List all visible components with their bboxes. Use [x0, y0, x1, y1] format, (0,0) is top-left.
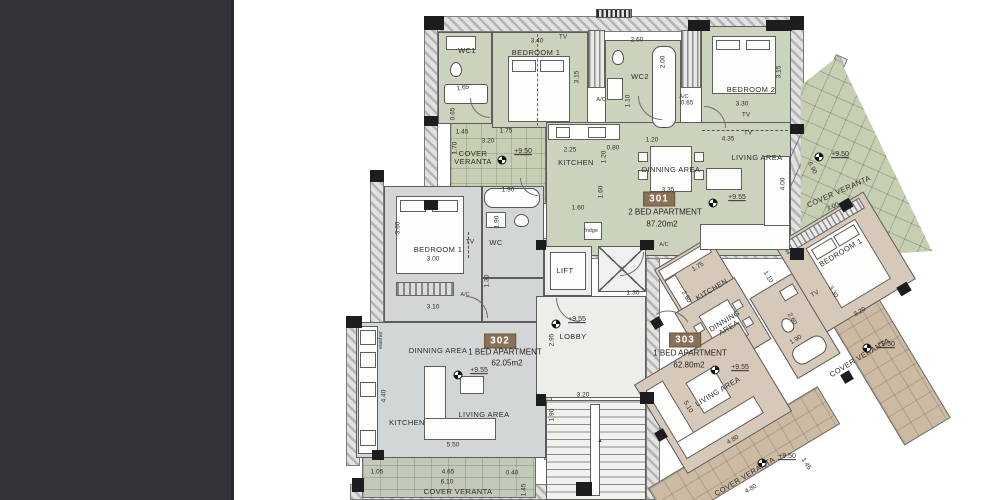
- floor-plan: WC1BEDROOM 13.40TV3.151.652.602.00WC21.1…: [0, 0, 1000, 500]
- dim: 3.15: [775, 66, 782, 79]
- dim: 1.90: [493, 216, 500, 229]
- dim: 4.65: [442, 468, 455, 475]
- labels-layer: WC1BEDROOM 13.40TV3.151.652.602.00WC21.1…: [0, 0, 1000, 500]
- dim: 4.80: [744, 483, 759, 496]
- apartment-area-303: 62.80m2: [673, 362, 704, 371]
- level-marker-icon: [815, 153, 824, 162]
- dim: 3.15: [573, 71, 580, 84]
- dim: 1.60: [572, 204, 585, 211]
- level-marker-icon: [863, 344, 872, 353]
- dim: 1.30: [627, 289, 640, 296]
- room-label-wc1: WC1: [458, 47, 476, 55]
- dim: 3.30: [736, 100, 749, 107]
- dim: 1.75: [500, 127, 513, 134]
- apartment-area-301: 87.20m2: [646, 221, 677, 230]
- apartment-id-302: 302: [484, 334, 516, 349]
- dim: 1.90: [502, 186, 515, 193]
- tv-label: TV: [742, 111, 750, 118]
- level-303-veranda-bottom: +9.50: [778, 453, 796, 461]
- dim: 2.25: [564, 146, 577, 153]
- dim: 2.95: [548, 334, 555, 347]
- dim: 1.10: [624, 95, 631, 108]
- level-303: +9.55: [731, 364, 749, 372]
- room-label-302-kitchen: KITCHEN: [389, 419, 425, 427]
- level-marker-icon: [552, 320, 561, 329]
- dim: 6.90: [806, 161, 818, 176]
- room-label-wc2: WC2: [631, 73, 649, 81]
- stairs-up-arrow: ▲: [597, 438, 602, 444]
- room-label-301-kitchen: KITCHEN: [558, 159, 594, 167]
- washer-label: washer: [378, 331, 384, 349]
- dim: 1.90: [789, 334, 804, 347]
- veranda-label-303-right: COVER VERANTA: [828, 337, 891, 380]
- dim: 1.90: [548, 409, 555, 422]
- room-label-lobby: LOBBY: [559, 333, 586, 341]
- dim: 1.45: [800, 457, 813, 472]
- dim: 2.60: [631, 36, 644, 43]
- dim: 0.65: [681, 99, 694, 106]
- dim: 1.30: [483, 275, 490, 288]
- dim: 1.70: [451, 142, 458, 155]
- dim: 1.20: [646, 136, 659, 143]
- dim: 1.10: [762, 270, 775, 285]
- room-label-301-dinning: DINNING AREA: [642, 166, 701, 174]
- apartment-area-302: 62.05m2: [491, 360, 522, 369]
- dim: 1.05: [371, 468, 384, 475]
- room-label-lift: LIFT: [556, 267, 573, 275]
- level-lobby: +9.55: [568, 316, 586, 324]
- dim: 4.40: [380, 390, 387, 403]
- apartment-id-303: 303: [669, 333, 701, 348]
- room-label-303-bed1: BEDROOM 1: [818, 237, 864, 269]
- dim: 2.00: [659, 56, 666, 69]
- room-label-301-bed1: BEDROOM 1: [512, 49, 561, 57]
- ac-label: A/C: [679, 94, 688, 100]
- dim: 6.10: [441, 478, 454, 485]
- level-marker-icon: [498, 156, 507, 165]
- room-label-301-living: LIVING AREA: [731, 154, 782, 162]
- dim: 5.10: [682, 400, 695, 415]
- dim: 5.50: [447, 441, 460, 448]
- dim: 4.35: [722, 135, 735, 142]
- room-label-303-living: LIVING AREA: [694, 375, 742, 408]
- dim: 3.60: [394, 222, 401, 235]
- dim: 2.50: [680, 290, 693, 305]
- dim: 1.60: [597, 186, 604, 199]
- level-302: +9.55: [470, 367, 488, 375]
- dim: 0.80: [607, 144, 620, 151]
- level-marker-icon: [711, 366, 720, 375]
- dim: 3.10: [427, 303, 440, 310]
- ac-label: A/C: [659, 242, 668, 248]
- dim: 1.45: [456, 128, 469, 135]
- dim: 3.30: [827, 285, 840, 300]
- ac-label: A/C: [460, 292, 469, 298]
- dim: 4.00: [779, 178, 786, 191]
- dim: 3.00: [826, 201, 840, 213]
- room-label-303-kitchen: KITCHEN: [695, 277, 730, 302]
- apartment-type-303: 1 BED APARTMENT: [653, 350, 727, 359]
- dim: 1.65: [456, 83, 470, 92]
- dim: 1.20: [600, 151, 607, 164]
- level-veranda-left: +9.50: [514, 148, 532, 156]
- level-marker-icon: [454, 371, 463, 380]
- dim: 0.40: [506, 469, 519, 476]
- apartment-type-302: 1 BED APARTMENT: [468, 349, 542, 358]
- level-marker-icon: [709, 199, 718, 208]
- room-label-302-bed1: BEDROOM 1: [414, 246, 463, 254]
- tv-label: TV: [466, 238, 474, 245]
- dim: 4.80: [726, 434, 741, 447]
- apartment-id-301: 301: [643, 192, 675, 207]
- ac-label: A/C: [596, 97, 605, 103]
- fridge-label: fridge: [584, 228, 598, 234]
- apartment-type-301: 2 BED APARTMENT: [628, 209, 702, 218]
- level-marker-icon: [758, 459, 767, 468]
- dim: 3.20: [577, 391, 590, 398]
- dim: 3.20: [853, 306, 868, 319]
- room-label-302-wc: WC: [489, 239, 502, 247]
- dim: 1.45: [520, 484, 527, 497]
- dim: 0.65: [449, 108, 456, 121]
- room-label-302-dinning: DINNING AREA: [409, 347, 468, 355]
- tv-label: TV: [559, 33, 567, 40]
- level-veranda-right: +9.50: [831, 151, 849, 159]
- tv-label: TV: [810, 289, 821, 299]
- dim: 2.60: [786, 312, 799, 327]
- room-label-302-living: LIVING AREA: [458, 411, 509, 419]
- room-label-301-bed2: BEDROOM 2: [727, 86, 776, 94]
- dim: 3.40: [531, 37, 544, 44]
- level-301: +9.55: [728, 194, 746, 202]
- veranda-label-302: COVER VERANTA: [424, 488, 493, 496]
- dim: 3.20: [482, 137, 495, 144]
- floor-plan-page: WC1BEDROOM 13.40TV3.151.652.602.00WC21.1…: [0, 0, 1000, 500]
- dim: 3.00: [427, 255, 440, 262]
- room-label-303-dinning: DINNING AREA: [700, 305, 753, 346]
- dim: 1.75: [691, 261, 706, 274]
- tv-label: TV: [744, 129, 752, 136]
